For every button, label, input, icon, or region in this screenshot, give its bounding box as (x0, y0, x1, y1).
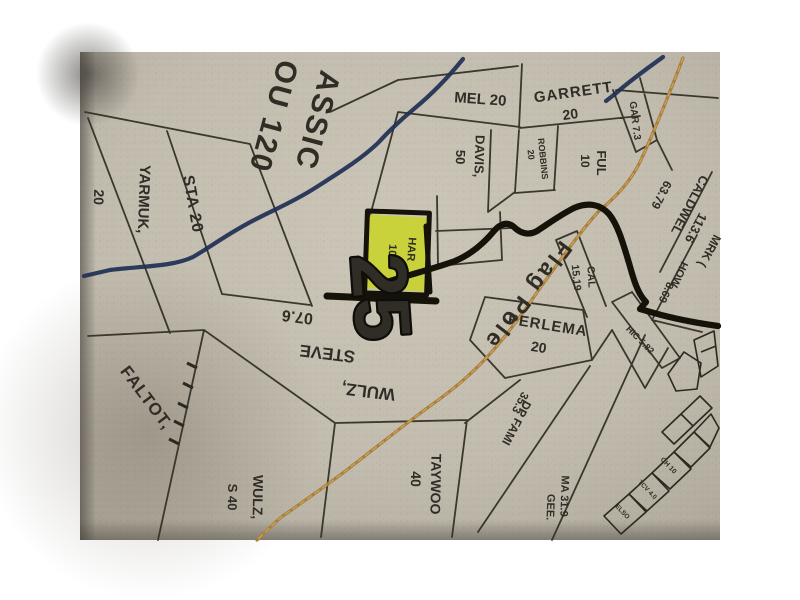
label-wulz-s: WULZ, (250, 475, 267, 520)
label-ful: FUL (594, 150, 609, 175)
label-davis: DAVIS, (471, 135, 487, 178)
label-cal: CAL (584, 266, 597, 289)
label-yarmuk: YARMUK, (134, 165, 153, 234)
page-background: MEL 20 GARRETT 20 DAVIS, 50 ROBBINS 20 F… (0, 0, 800, 600)
label-perlema-acres: 20 (530, 338, 548, 356)
section-number-25: 25 (334, 251, 428, 344)
plat-map-photo: MEL 20 GARRETT 20 DAVIS, 50 ROBBINS 20 F… (0, 0, 800, 600)
label-robbins-acres: 20 (525, 149, 536, 160)
label-yarmuk-acres: 20 (91, 189, 108, 205)
label-gee: GEE. (544, 494, 557, 521)
label-wulz-s-acres: S 40 (225, 484, 240, 511)
label-garrett-acres: 20 (561, 105, 579, 123)
label-ful-acres: 10 (578, 154, 592, 168)
label-gee-acres: MA 31.9 (557, 475, 570, 517)
label-davis-acres: 50 (453, 150, 468, 165)
label-mel: MEL 20 (454, 89, 507, 110)
label-taywoo: TAYWOO (427, 454, 444, 515)
photo-corner-shadow (36, 22, 140, 126)
label-taywoo-acres: 40 (408, 471, 424, 487)
